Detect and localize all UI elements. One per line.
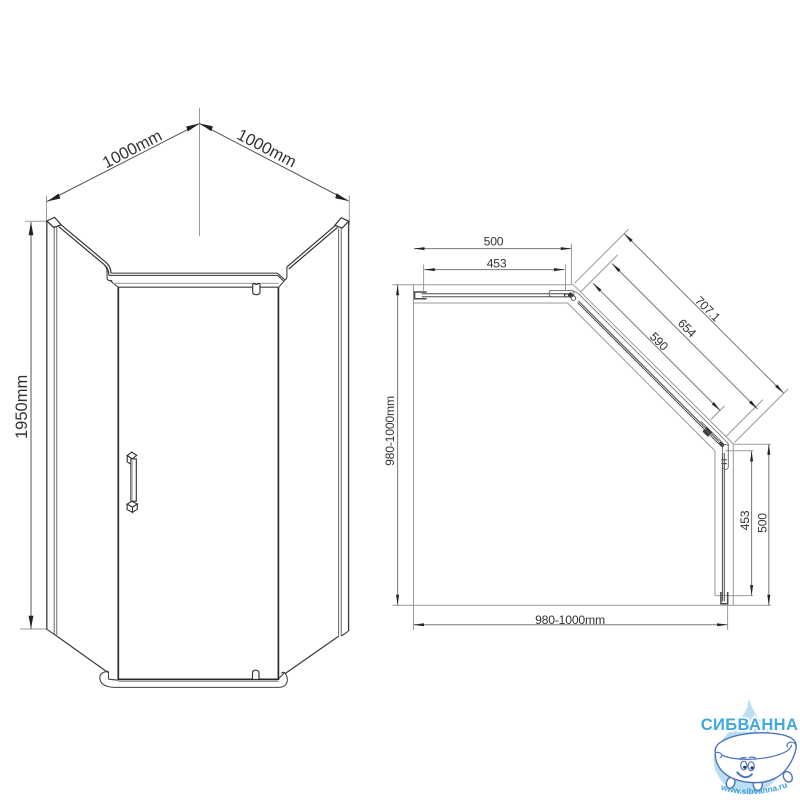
svg-text:980-1000mm: 980-1000mm <box>383 396 397 466</box>
svg-text:500: 500 <box>484 235 504 249</box>
svg-text:453: 453 <box>738 510 752 530</box>
svg-text:1950mm: 1950mm <box>13 375 31 439</box>
svg-text:500: 500 <box>755 513 769 533</box>
svg-text:СИБВАННА: СИБВАННА <box>701 716 799 734</box>
svg-text:453: 453 <box>487 257 507 271</box>
svg-text:980-1000mm: 980-1000mm <box>535 613 605 627</box>
